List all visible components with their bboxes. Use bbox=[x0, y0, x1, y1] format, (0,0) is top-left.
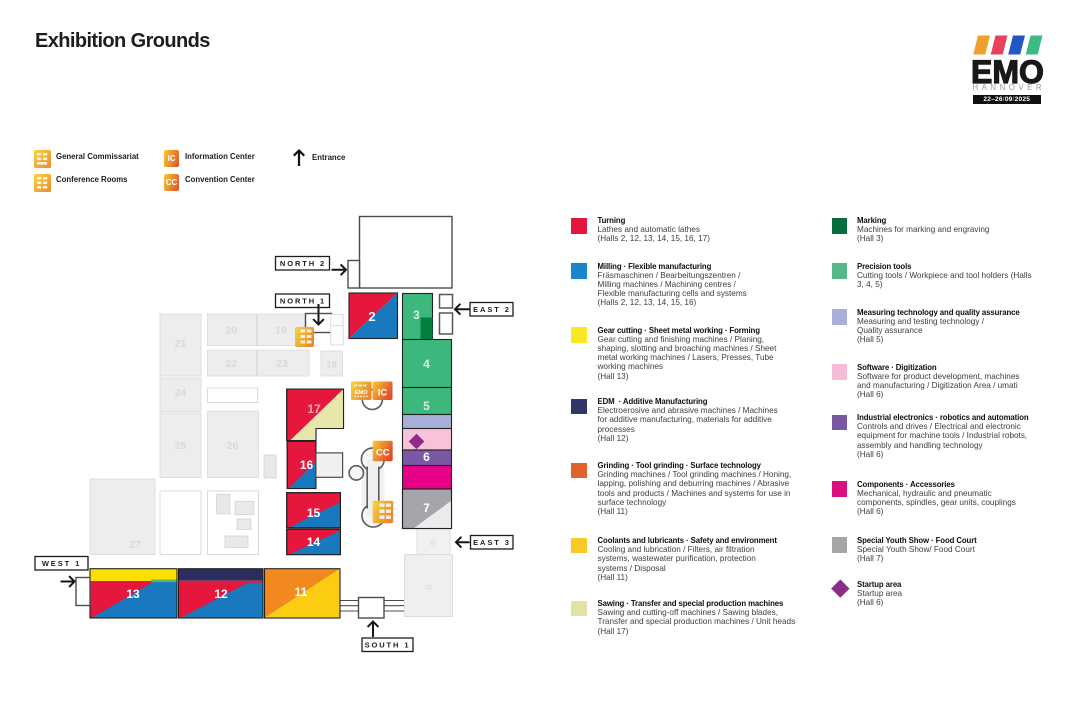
svg-text:24: 24 bbox=[175, 387, 187, 399]
svg-text:EMO: EMO bbox=[355, 390, 368, 396]
svg-text:EAST 3: EAST 3 bbox=[473, 538, 511, 547]
svg-text:IC: IC bbox=[378, 388, 388, 399]
svg-text:3: 3 bbox=[413, 308, 420, 322]
svg-text:17: 17 bbox=[307, 402, 321, 416]
svg-text:21: 21 bbox=[175, 338, 187, 350]
svg-text:20: 20 bbox=[226, 325, 238, 337]
svg-text:19: 19 bbox=[275, 325, 287, 337]
svg-text:13: 13 bbox=[126, 587, 140, 601]
svg-text:18: 18 bbox=[326, 360, 337, 371]
svg-text:4: 4 bbox=[423, 357, 430, 371]
svg-text:9: 9 bbox=[422, 584, 434, 590]
svg-text:22: 22 bbox=[226, 358, 238, 370]
svg-text:WEST 1: WEST 1 bbox=[42, 559, 81, 568]
svg-text:NORTH 2: NORTH 2 bbox=[280, 259, 326, 268]
svg-text:6: 6 bbox=[423, 450, 430, 464]
svg-text:2: 2 bbox=[368, 309, 375, 324]
svg-text:16: 16 bbox=[300, 458, 314, 472]
svg-text:25: 25 bbox=[175, 440, 187, 452]
svg-text:5: 5 bbox=[423, 399, 430, 413]
svg-text:CC: CC bbox=[376, 448, 390, 459]
svg-text:27: 27 bbox=[129, 539, 141, 551]
svg-text:15: 15 bbox=[307, 506, 321, 520]
svg-text:SOUTH 1: SOUTH 1 bbox=[365, 641, 411, 650]
svg-text:8: 8 bbox=[430, 538, 435, 549]
svg-text:7: 7 bbox=[423, 501, 430, 515]
svg-text:23: 23 bbox=[276, 358, 288, 370]
svg-text:12: 12 bbox=[214, 587, 228, 601]
svg-text:26: 26 bbox=[227, 440, 239, 452]
svg-text:EAST 2: EAST 2 bbox=[473, 305, 511, 314]
svg-text:14: 14 bbox=[307, 535, 321, 549]
svg-text:11: 11 bbox=[295, 585, 308, 599]
